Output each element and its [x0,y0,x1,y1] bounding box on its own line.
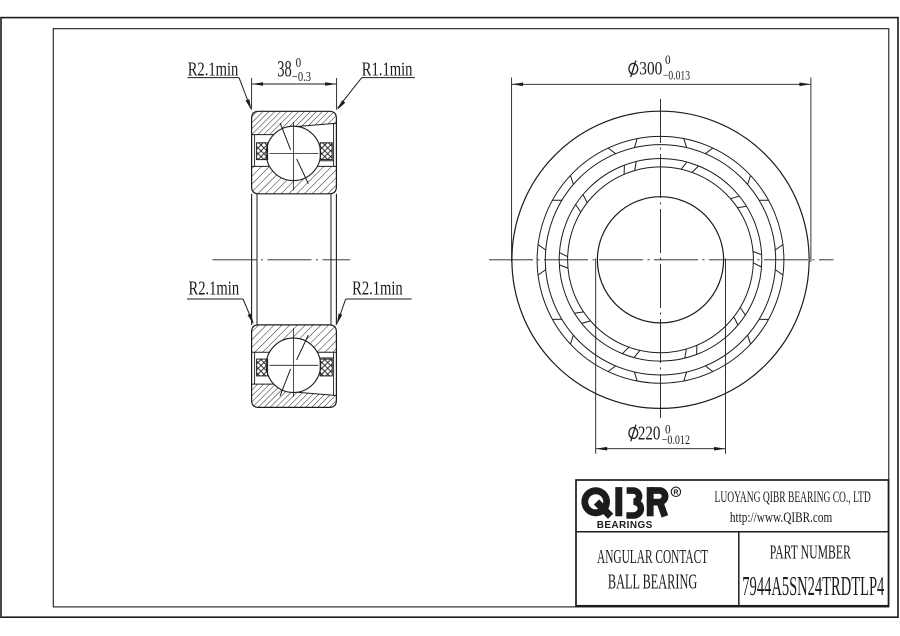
svg-text:R: R [673,489,678,496]
svg-text:R2.1min: R2.1min [352,278,403,300]
svg-text:http://www.QIBR.com: http://www.QIBR.com [730,510,833,526]
svg-text:ANGULAR CONTACT: ANGULAR CONTACT [597,546,708,568]
svg-text:PART NUMBER: PART NUMBER [770,542,851,564]
svg-text:300: 300 [639,59,662,80]
svg-text:38: 38 [277,57,292,82]
svg-text:BALL BEARING: BALL BEARING [608,570,697,594]
svg-text:7944A5SN24TRDTLP4: 7944A5SN24TRDTLP4 [742,571,884,601]
svg-text:R2.1min: R2.1min [189,278,240,300]
svg-text:LUOYANG QIBR BEARING CO., LTD: LUOYANG QIBR BEARING CO., LTD [715,489,871,506]
svg-text:−0.012: −0.012 [662,432,690,447]
svg-text:−0.013: −0.013 [663,68,690,83]
svg-text:220: 220 [638,423,661,445]
svg-text:0: 0 [665,52,671,67]
svg-text:0: 0 [296,56,302,71]
svg-text:BEARINGS: BEARINGS [597,520,653,531]
svg-text:−0.3: −0.3 [292,70,311,85]
